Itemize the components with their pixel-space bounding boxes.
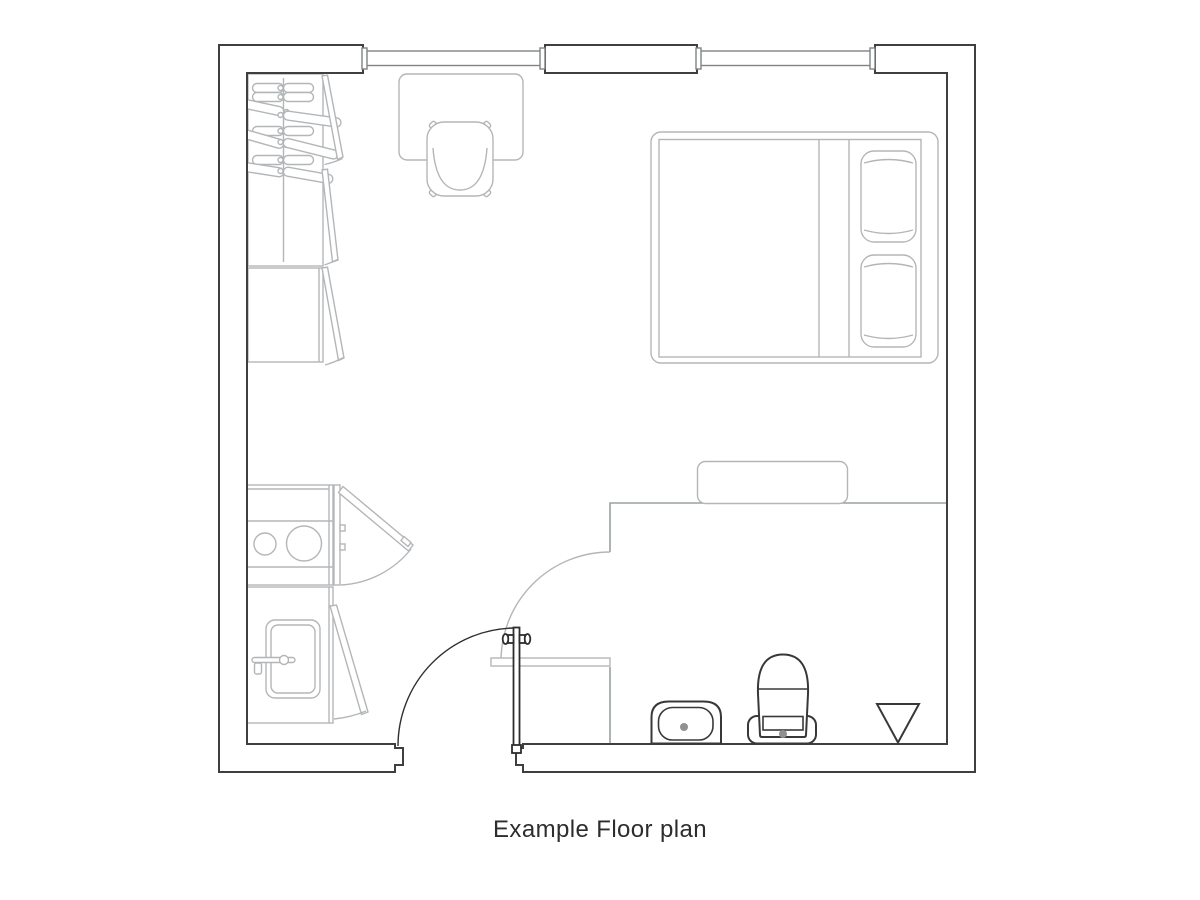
hanger-hook (278, 113, 283, 118)
hanger-hook (278, 169, 283, 174)
appliance-hinge (340, 544, 345, 550)
shower-symbol (877, 704, 919, 743)
bathroom-wall-top (610, 503, 947, 552)
cabinet-door-open (330, 605, 368, 715)
pillow (861, 255, 916, 347)
bathroom-door (491, 552, 610, 666)
clothes-hanger (284, 93, 314, 102)
toilet (748, 655, 816, 744)
window-end-cap (362, 48, 367, 69)
window-glass (366, 51, 542, 66)
door-knob (525, 634, 531, 644)
hanger-hook (278, 86, 283, 91)
wardrobe-door-bottom (322, 267, 344, 360)
stove-burner-large (287, 526, 322, 561)
bathroom-sink (652, 702, 722, 744)
hanger-hook (278, 95, 283, 100)
window-end-cap (870, 48, 875, 69)
hanger-hook (278, 158, 283, 163)
window-glass (700, 51, 872, 66)
floor-plan-image: Example Floor plan (0, 0, 1200, 900)
entry-door (398, 628, 530, 754)
kitchen-counter (247, 485, 413, 723)
sofa-cushion (698, 462, 848, 504)
window-1 (362, 48, 545, 69)
window-end-cap (540, 48, 545, 69)
hanger-hook (278, 129, 283, 134)
kitchen-faucet-knob (280, 656, 289, 665)
bed (651, 132, 938, 363)
toilet-dot (779, 730, 787, 738)
chair-seat (427, 122, 493, 196)
wall-top-middle-section (545, 45, 697, 73)
entry-door-leaf (514, 628, 520, 746)
wardrobe-door-bottom-arc (325, 358, 344, 366)
hanger-hook (278, 140, 283, 145)
appliance-hinge (340, 525, 345, 531)
clothes-hanger (284, 156, 314, 165)
wardrobe-lower-cabinet (248, 268, 323, 362)
entry-door-swing-arc (398, 628, 514, 746)
sink-drain-dot (680, 723, 688, 731)
wardrobe-door-middle-arc (325, 260, 338, 266)
appliance-door-panel (334, 485, 340, 585)
desk-chair (427, 121, 493, 198)
bathroom-door-leaf (491, 658, 610, 666)
clothes-hanger (284, 84, 314, 93)
kitchen-faucet-handle (255, 663, 262, 674)
stove-burner-small (254, 533, 276, 555)
window-2 (696, 48, 875, 69)
pillow (861, 151, 916, 242)
entry-door-threshold (512, 745, 521, 753)
window-end-cap (696, 48, 701, 69)
floor-plan-canvas (0, 0, 1200, 900)
door-knob (503, 634, 509, 644)
toilet-bowl (758, 655, 808, 738)
clothes-hanger (284, 127, 314, 136)
plan-caption: Example Floor plan (0, 816, 1200, 844)
appliance-door-swing-arc (341, 549, 411, 585)
